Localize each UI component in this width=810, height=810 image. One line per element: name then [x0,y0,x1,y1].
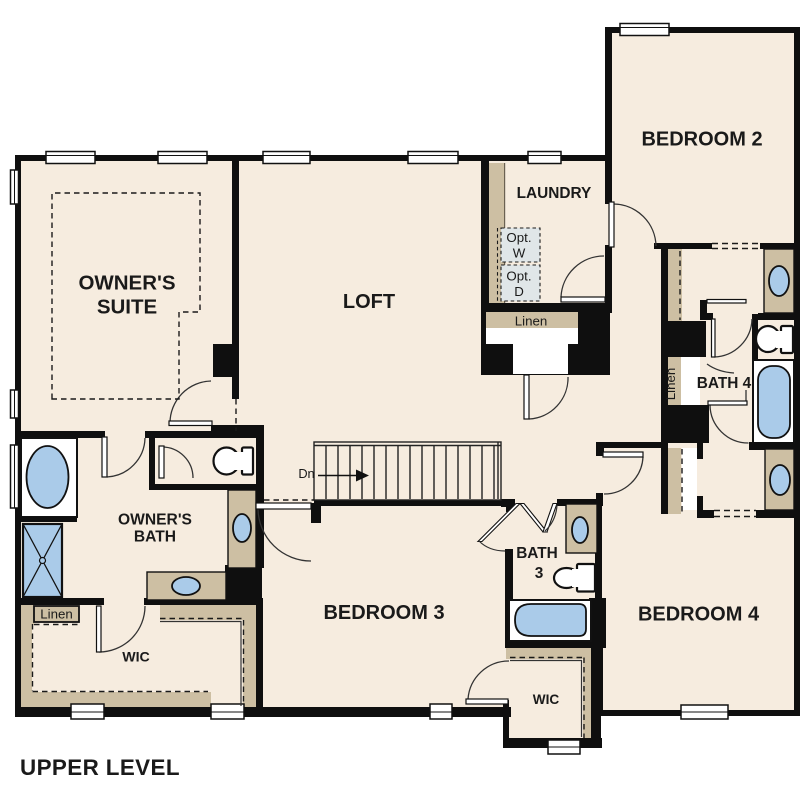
svg-text:BATH 4: BATH 4 [697,375,752,392]
svg-text:LAUNDRY: LAUNDRY [517,185,592,202]
svg-text:Opt.: Opt. [506,230,531,245]
svg-text:WIC: WIC [122,650,150,666]
svg-text:UPPER LEVEL: UPPER LEVEL [20,755,180,780]
svg-text:OWNER'S: OWNER'S [78,272,175,295]
svg-text:OWNER'S: OWNER'S [118,512,192,529]
svg-text:WIC: WIC [533,692,560,707]
svg-text:BEDROOM 2: BEDROOM 2 [641,129,762,151]
svg-text:BATH: BATH [516,545,558,562]
svg-text:W: W [513,246,526,261]
svg-text:BEDROOM 4: BEDROOM 4 [638,604,760,626]
svg-text:LOFT: LOFT [343,291,395,313]
svg-text:Dn: Dn [298,466,314,481]
svg-text:Linen: Linen [515,314,548,329]
svg-text:BATH: BATH [134,529,176,546]
svg-text:Linen: Linen [40,607,73,622]
svg-text:Opt.: Opt. [506,269,531,284]
svg-text:Linen: Linen [663,368,678,401]
svg-text:D: D [514,284,524,299]
svg-text:SUITE: SUITE [97,296,157,319]
svg-text:3: 3 [535,565,544,582]
svg-text:BEDROOM 3: BEDROOM 3 [323,602,444,624]
